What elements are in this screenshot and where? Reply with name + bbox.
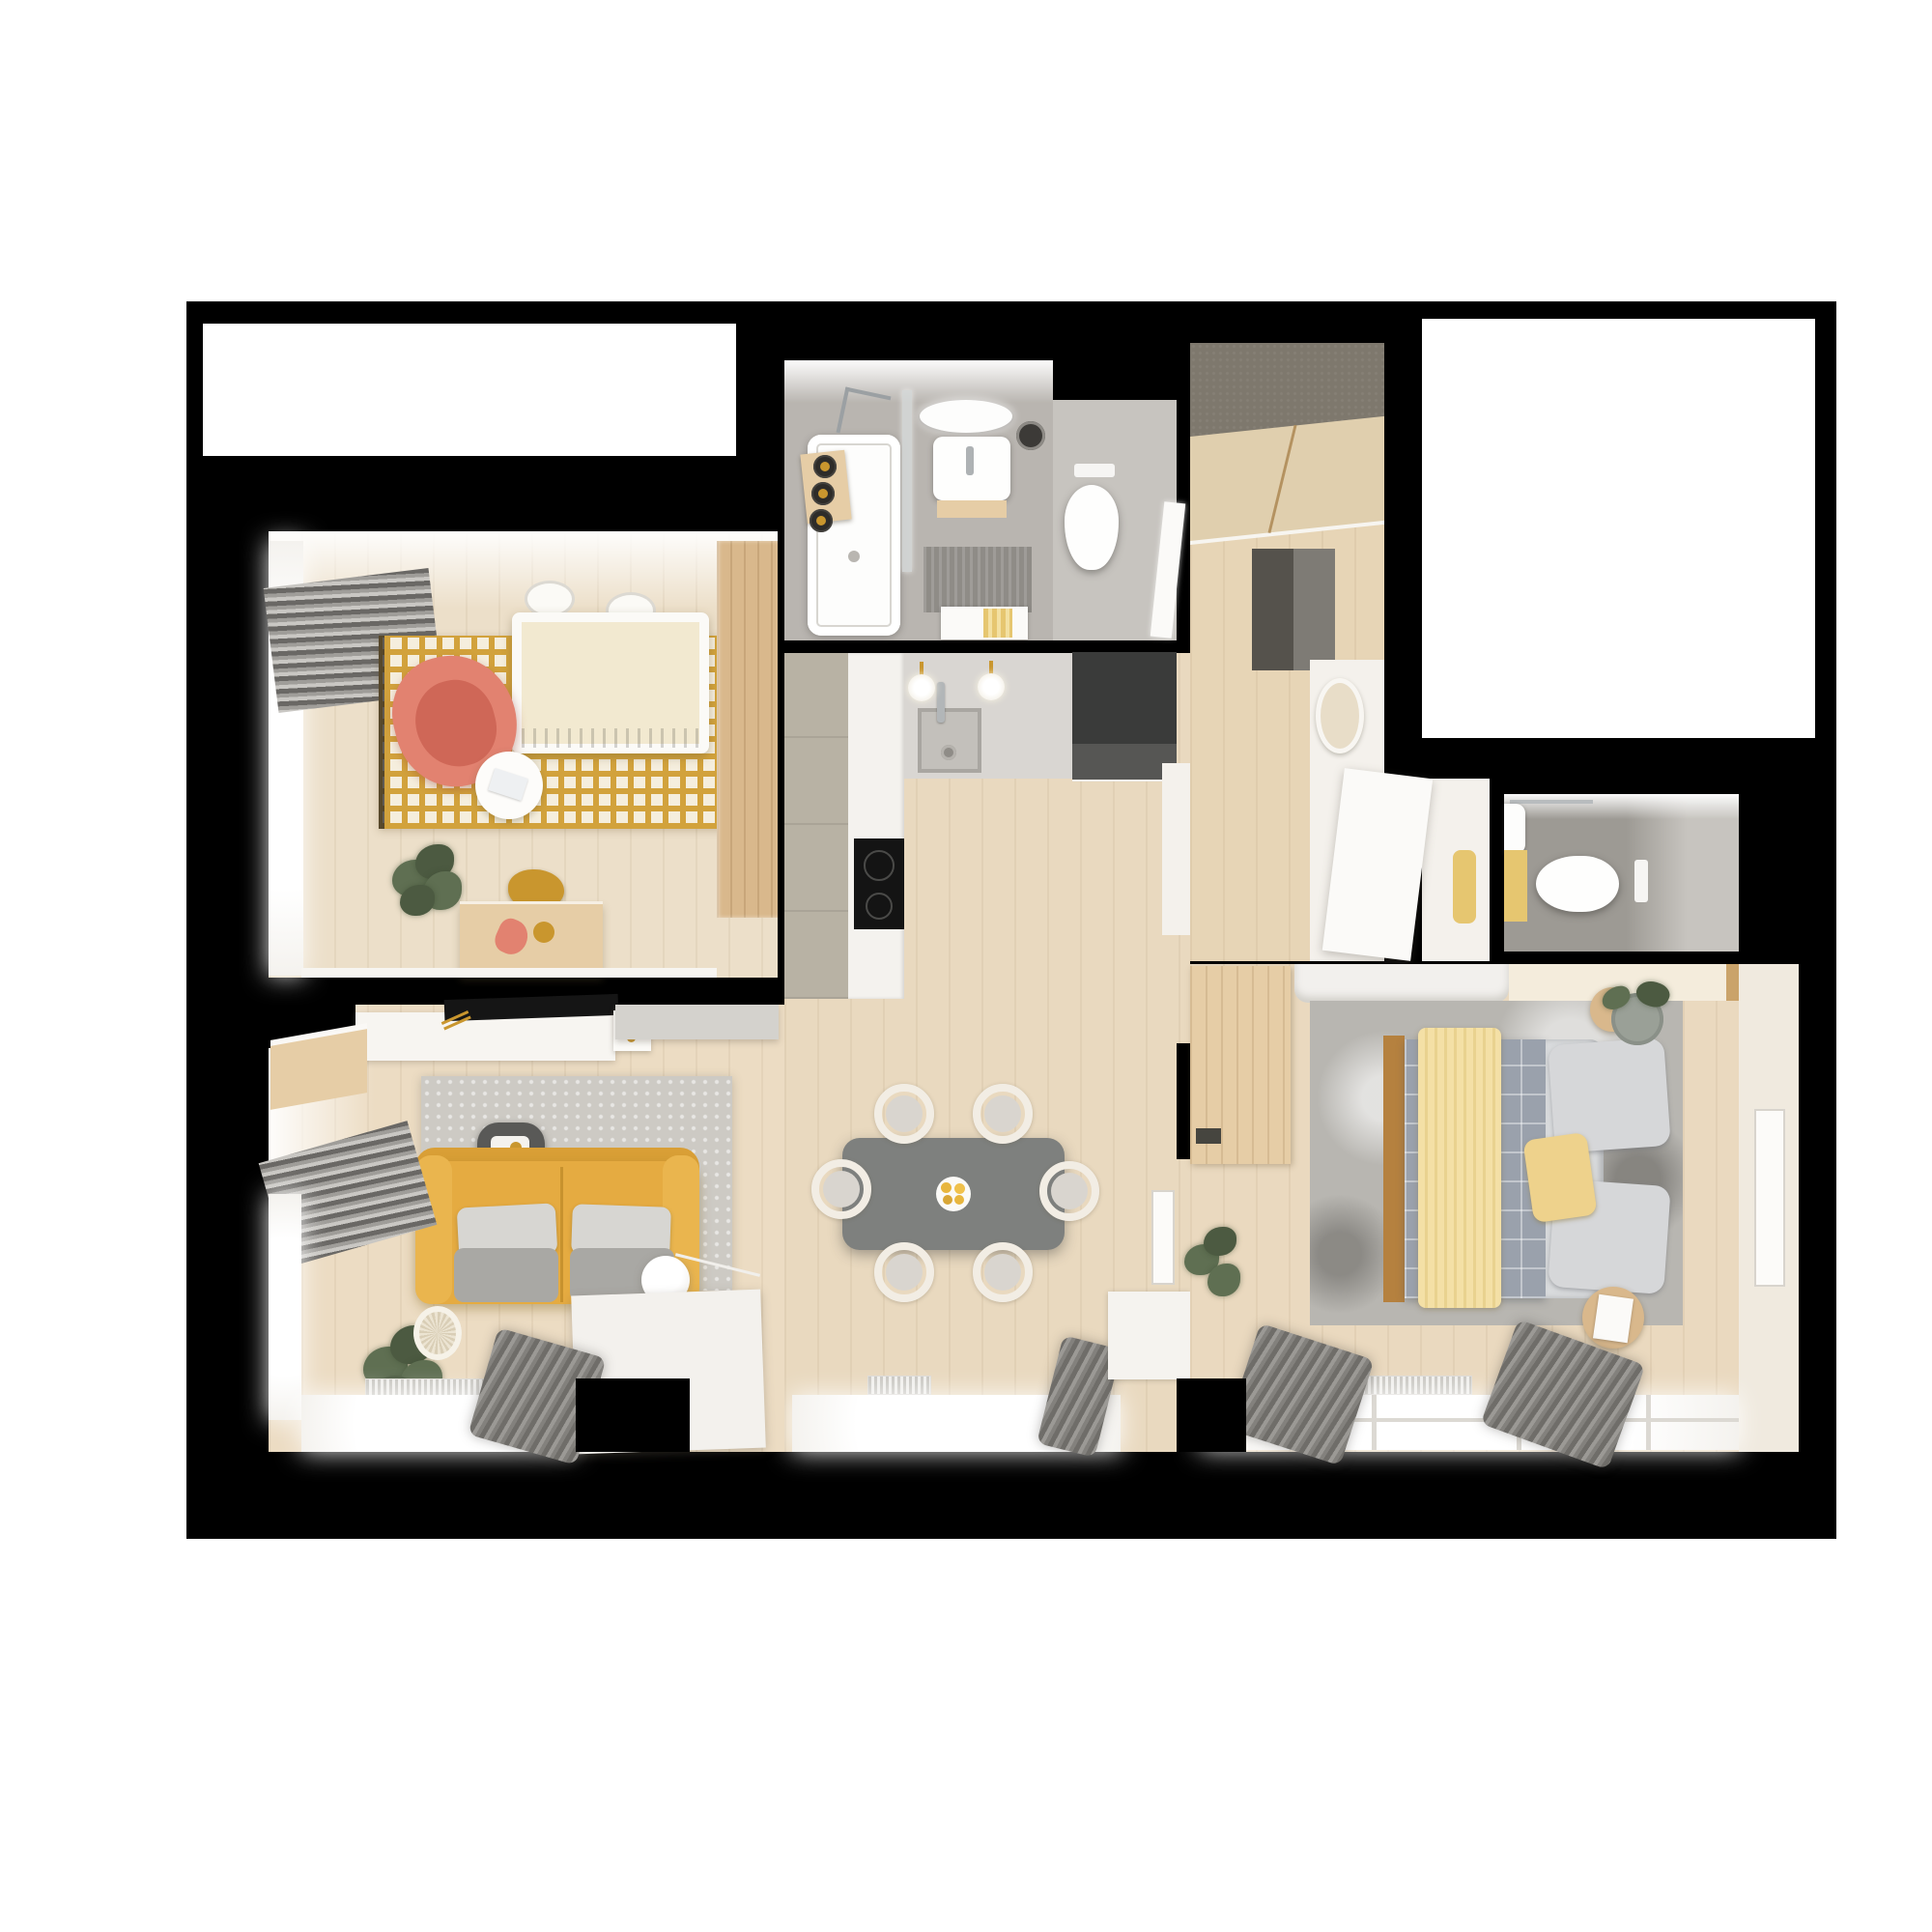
yellow-towels	[983, 609, 1012, 638]
kitchen-sink	[918, 708, 981, 773]
wall-stub-living-bottom	[576, 1378, 690, 1452]
cooktop-burner	[866, 893, 893, 920]
wall-stub-bedroom-bottom-left	[1177, 1378, 1246, 1452]
hallway-wardrobe-doors	[1190, 416, 1384, 541]
book-decor	[488, 768, 528, 801]
dining-chair	[973, 1084, 1033, 1144]
wc-yellow-mat	[1504, 850, 1527, 922]
bedroom-room	[1190, 964, 1799, 1452]
bedside-stool	[1582, 1287, 1644, 1349]
kitchen-dining-room	[784, 653, 1190, 1452]
flush-plate	[1074, 464, 1115, 477]
desk-dark-item	[1196, 1128, 1221, 1144]
toy-dresser	[460, 904, 603, 978]
leaning-art-frame	[1151, 1190, 1175, 1285]
bedroom-bench	[1294, 964, 1509, 1003]
nursery-wardrobe-panel	[717, 541, 778, 918]
doormat-light-half	[1293, 549, 1335, 670]
wc-mini-sink	[1504, 804, 1525, 854]
entry-chair	[1316, 678, 1364, 753]
towel-ring	[1016, 421, 1045, 450]
bath-mat	[923, 547, 1032, 612]
toy-coral	[491, 915, 533, 959]
bath-jar	[810, 509, 833, 532]
wall-cutout-top-left	[203, 324, 736, 456]
bed-yellow-throw	[1418, 1028, 1501, 1308]
bath-jar	[813, 455, 837, 478]
shower-fixture	[837, 387, 892, 442]
nightstand-plant-pot	[1611, 993, 1663, 1045]
crib	[512, 612, 709, 753]
bedroom-desk	[1190, 966, 1291, 1164]
wc-room	[1504, 794, 1739, 952]
crib-slats	[522, 728, 699, 748]
nursery-side-table	[475, 752, 543, 819]
fruit-plate	[936, 1177, 971, 1211]
dining-side-cabinet	[1108, 1292, 1190, 1379]
doormat	[1252, 549, 1335, 670]
dining-chair	[1039, 1161, 1099, 1221]
shower-glass	[902, 390, 912, 572]
nursery-room	[269, 531, 778, 978]
washbasin	[933, 437, 1010, 500]
tv-bench-gray	[615, 1005, 779, 1039]
kitchen-dark-unit-front	[1072, 744, 1177, 780]
dining-radiator	[867, 1376, 931, 1395]
wc-toilet	[1536, 856, 1619, 912]
kitchen-tall-cabinet	[784, 653, 848, 999]
wall-cutout-top-right	[1422, 319, 1815, 738]
pendant-lamp-globe	[908, 674, 935, 701]
kitchen-counter-left	[848, 653, 904, 999]
nursery-shelf-band	[301, 968, 717, 978]
basin-tap	[966, 446, 974, 475]
bedroom-plant	[1184, 1225, 1244, 1306]
kitchen-faucet	[937, 682, 945, 723]
wc-towel-bar	[1510, 800, 1593, 804]
desk-cushion-yellow	[1453, 850, 1476, 923]
wardrobe-door-seam	[1267, 425, 1296, 533]
cooktop	[854, 838, 904, 929]
bed	[1383, 1028, 1676, 1302]
bathroom-room	[784, 360, 1177, 640]
wc-flush-plate	[1634, 860, 1648, 902]
cabinet-wood-end	[1726, 964, 1739, 1001]
plant-basket	[413, 1306, 462, 1360]
bedroom-art-frame	[1754, 1109, 1785, 1287]
toilet	[1065, 485, 1119, 570]
living-room	[269, 1005, 784, 1452]
desk-nook	[1422, 779, 1490, 961]
bed-frame-wood	[1383, 1036, 1405, 1302]
living-window-left	[269, 1194, 301, 1420]
laundry-box	[941, 607, 1028, 639]
sofa-seam	[560, 1167, 563, 1302]
dining-chair	[973, 1242, 1033, 1302]
bathroom-mirror	[920, 400, 1012, 433]
bed-pillow-yellow	[1522, 1132, 1597, 1223]
dining-chair	[874, 1242, 934, 1302]
dining-chair	[874, 1084, 934, 1144]
toy-gold-ball	[533, 922, 554, 943]
cooktop-burner	[864, 850, 895, 881]
kitchen-dark-unit	[1072, 652, 1177, 744]
bathtub-drain	[848, 551, 860, 562]
bath-jar	[811, 482, 835, 505]
dining-table	[842, 1138, 1065, 1250]
washbasin-cabinet	[937, 500, 1007, 518]
stool-magazine	[1593, 1294, 1634, 1344]
pendant-lamp-globe	[978, 673, 1005, 700]
floor-plan-canvas	[0, 0, 1932, 1932]
sink-drain	[941, 745, 956, 760]
nursery-plant	[388, 842, 466, 920]
sofa-seat-cushion	[454, 1248, 558, 1302]
dining-chair	[811, 1159, 871, 1219]
wc-wall-glow	[1504, 794, 1739, 819]
nursery-ceiling-light	[527, 583, 572, 614]
bathroom-notch-wall	[1053, 348, 1177, 400]
